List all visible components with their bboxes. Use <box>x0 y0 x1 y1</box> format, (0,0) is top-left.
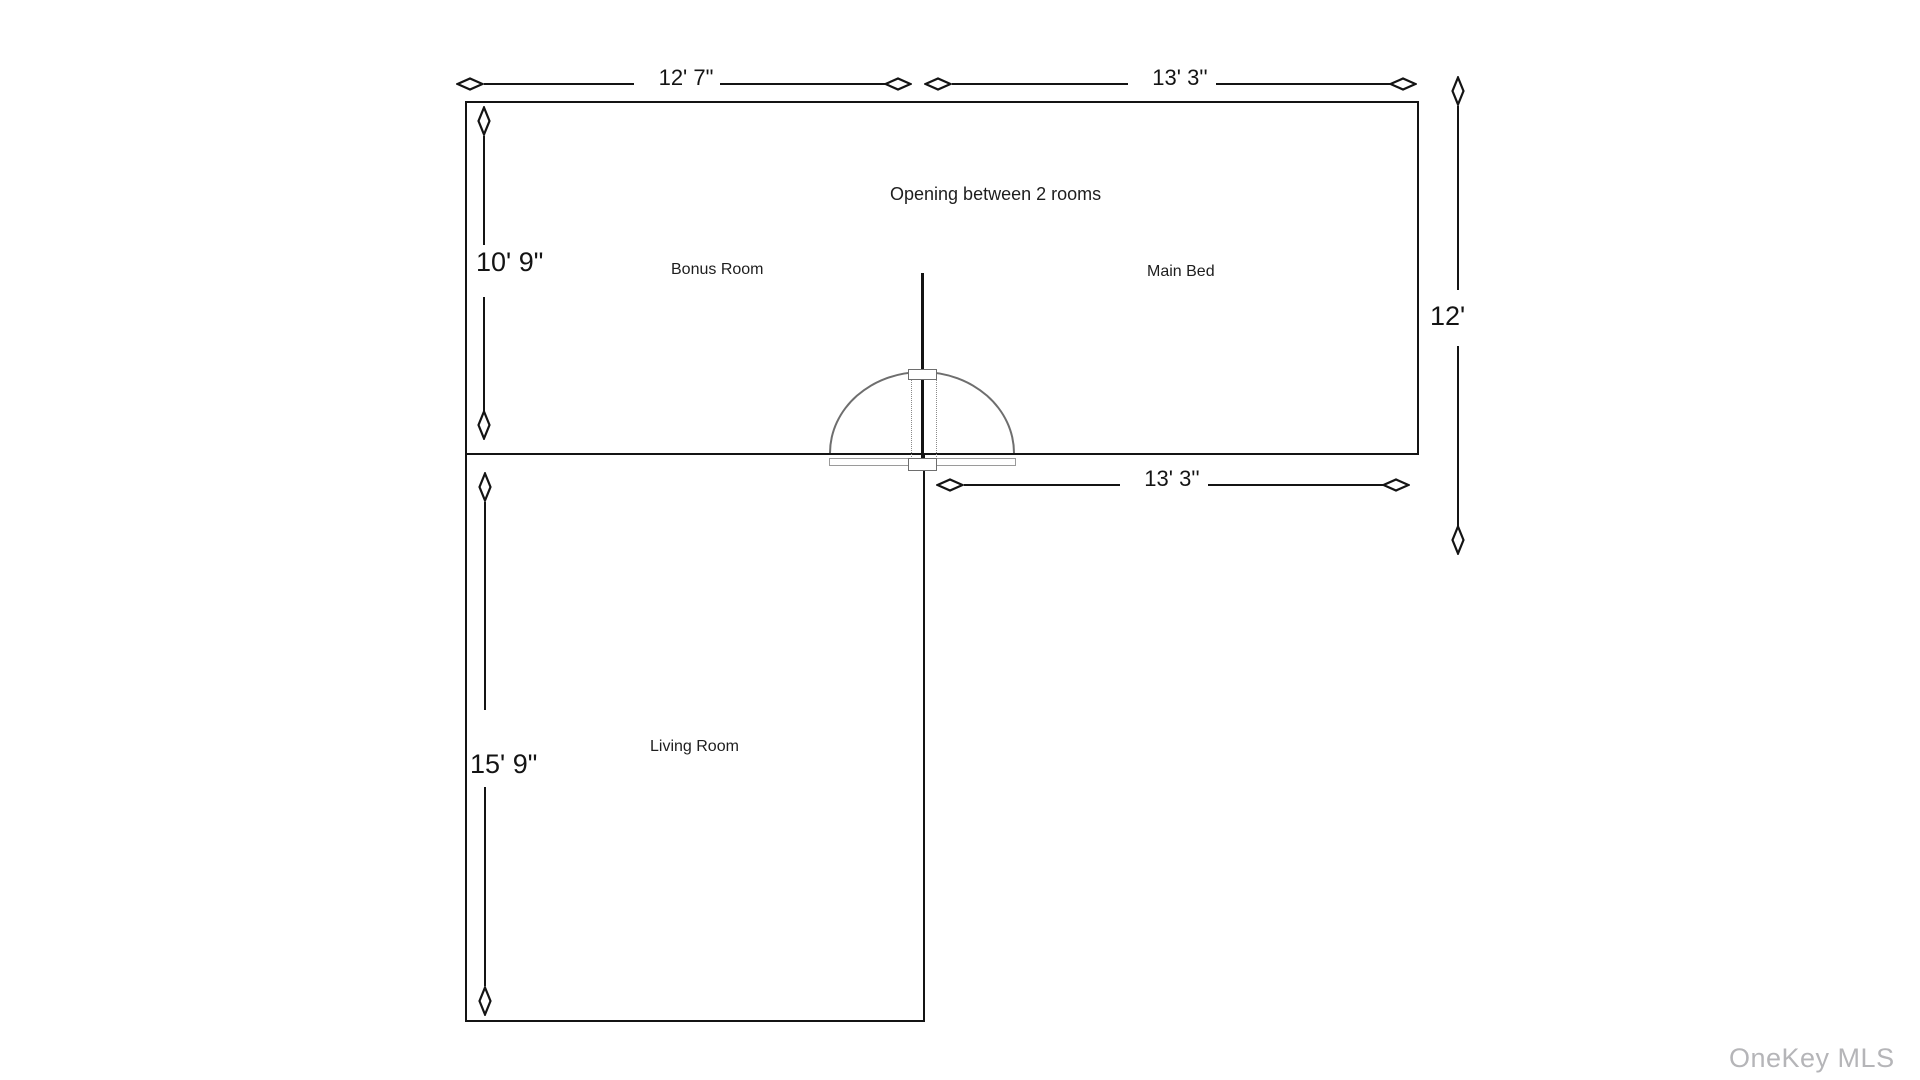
dimension-arrow-diamond <box>456 77 484 91</box>
dimension-line <box>720 83 886 85</box>
dimension-label-top-right: 13' 3'' <box>1128 66 1232 90</box>
dimension-line <box>1216 83 1390 85</box>
dimension-line <box>964 484 1136 486</box>
floorplan-canvas: 12' 7" 13' 3'' 13' 3'' 12' 10' 9" <box>0 0 1920 1080</box>
room-label-living: Living Room <box>650 738 739 756</box>
opening-annotation: Opening between 2 rooms <box>890 184 1101 205</box>
dimension-arrow-diamond <box>1382 478 1410 492</box>
dimension-line <box>1457 106 1459 290</box>
dimension-arrow-diamond <box>1451 525 1465 555</box>
dimension-label-left-lower: 15' 9" <box>470 750 537 780</box>
dimension-arrow-diamond <box>477 410 491 440</box>
dimension-line <box>1457 346 1459 526</box>
room-label-main-bed: Main Bed <box>1147 263 1215 281</box>
dimension-line <box>484 787 486 986</box>
dimension-line <box>483 136 485 245</box>
dimension-line <box>952 83 1144 85</box>
dimension-label-right: 12' <box>1430 302 1465 332</box>
dimension-line <box>484 83 654 85</box>
dimension-label-left-upper: 10' 9" <box>476 248 543 278</box>
room-label-bonus: Bonus Room <box>671 261 764 279</box>
dimension-arrow-diamond <box>478 986 492 1016</box>
dimension-arrow-diamond <box>477 106 491 136</box>
dimension-label-top-left: 12' 7" <box>634 66 738 90</box>
dimension-arrow-diamond <box>936 478 964 492</box>
dimension-line <box>483 297 485 412</box>
dimension-arrow-diamond <box>1451 76 1465 106</box>
door-stop-box <box>908 458 937 471</box>
dimension-arrow-diamond <box>478 472 492 502</box>
door-leaf-dotted-right <box>936 379 937 461</box>
dimension-arrow-diamond <box>924 77 952 91</box>
dimension-line <box>484 502 486 710</box>
dimension-line <box>1208 484 1383 486</box>
watermark: OneKey MLS <box>1729 1043 1895 1074</box>
door-hinge-box <box>908 369 937 380</box>
door-leaf-dotted-left <box>911 379 912 461</box>
dimension-arrow-diamond <box>1389 77 1417 91</box>
dimension-arrow-diamond <box>884 77 912 91</box>
dimension-label-middle: 13' 3'' <box>1120 467 1224 491</box>
